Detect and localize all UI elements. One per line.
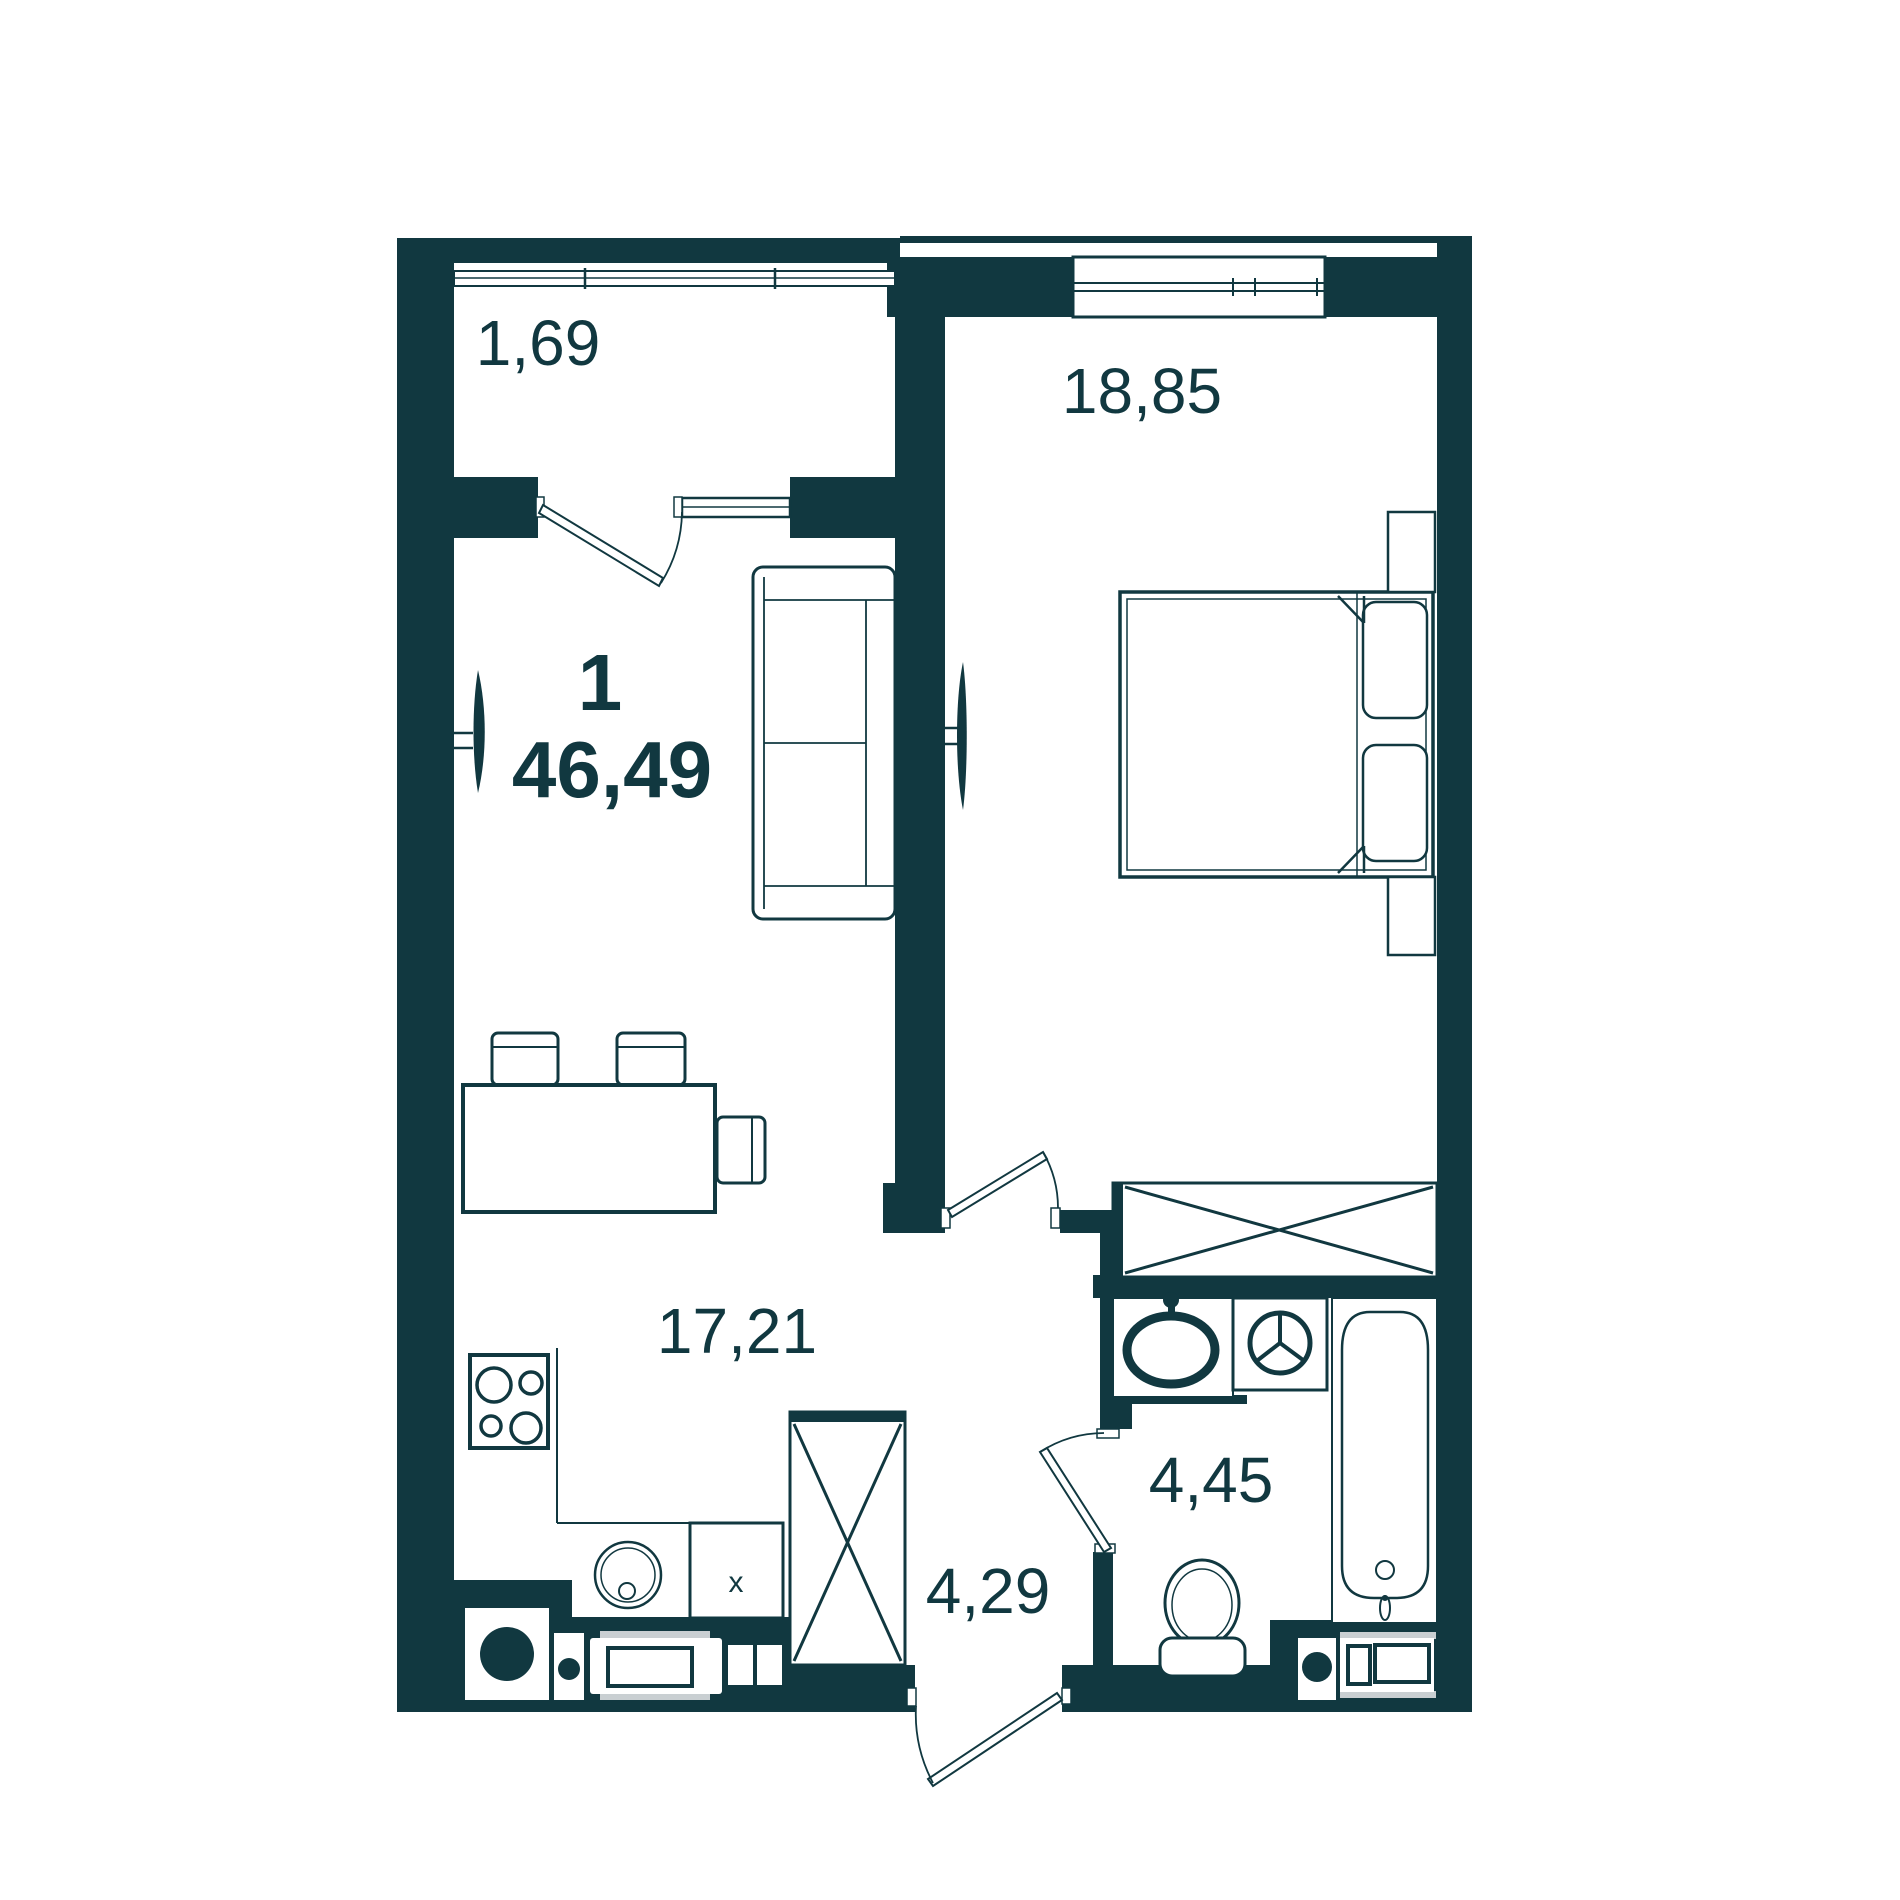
bath-band-cabinet-tab-bottom: [1340, 1691, 1436, 1698]
room-label-hallway: 4,29: [926, 1555, 1051, 1627]
wall-top-left-band: [397, 238, 900, 263]
wall-balcony-divider-left: [397, 477, 538, 538]
chair-top-1: [492, 1033, 558, 1085]
sink-faucet: [1163, 1292, 1179, 1308]
toilet-tank: [1160, 1638, 1245, 1676]
bath-band-cabinet-tab-top: [1340, 1632, 1436, 1639]
wall-right: [1437, 242, 1472, 1712]
bedroom-wardrobe: [1113, 1183, 1437, 1277]
bedroom-wardrobe-left-edge: [1113, 1183, 1123, 1277]
floor-plan-canvas: x: [0, 0, 1900, 1900]
bath-band-cabinet-inner-1: [1348, 1646, 1370, 1684]
kitchen-band-cabinet-tab-top: [600, 1631, 710, 1638]
kitchen-cabinet-mark: x: [729, 1566, 744, 1599]
toilet: [1160, 1560, 1245, 1682]
toilet-bowl: [1165, 1560, 1239, 1646]
kitchen-band-square-2: [757, 1645, 782, 1685]
sofa: [753, 567, 895, 919]
kitchen-washer-drum: [480, 1627, 534, 1681]
chair-right: [717, 1117, 765, 1183]
room-label-bathroom: 4,45: [1149, 1444, 1274, 1516]
kitchen-band-knob: [558, 1658, 580, 1680]
bed: [1120, 592, 1433, 877]
dining-table: [463, 1085, 715, 1212]
bath-band-cabinet-inner-2: [1375, 1645, 1429, 1682]
kitchen-wardrobe: [790, 1412, 905, 1665]
kitchen-band-cabinet-inner: [608, 1648, 692, 1686]
wall-left: [397, 238, 454, 1712]
entrance-door-jamb-right: [1062, 1688, 1071, 1704]
toilet-button: [1203, 1676, 1211, 1682]
kitchen-band-cabinet-tab-bottom: [600, 1693, 710, 1700]
balcony-door-jamb-right: [674, 497, 682, 517]
sink-bowl: [1127, 1316, 1215, 1384]
kitchen-band-square-1: [728, 1645, 753, 1685]
room-label-kitchen-living: 17,21: [657, 1295, 817, 1367]
bathtub-basin: [1342, 1312, 1428, 1598]
wall-bathroom-left-lower: [1093, 1552, 1113, 1665]
wall-top-thin-edge: [900, 236, 1472, 243]
wall-living-bedroom-divider: [895, 317, 945, 1233]
total-area-label: 46,49: [512, 725, 712, 814]
entrance-door-jamb-left: [907, 1688, 916, 1706]
pillow-2: [1363, 745, 1427, 861]
bathtub-faucet-head: [1382, 1595, 1388, 1601]
bedroom-window: [1073, 257, 1325, 317]
nightstand-bottom: [1388, 877, 1435, 955]
stove: [470, 1355, 548, 1448]
bedroom-door-jamb-right: [1051, 1208, 1060, 1228]
kitchen-wardrobe-top-edge: [790, 1412, 905, 1422]
wall-balcony-divider-right: [790, 477, 897, 538]
bathroom-sink: [1113, 1291, 1233, 1397]
wall-divider-foot-block: [883, 1183, 945, 1233]
rooms-count-label: 1: [578, 638, 623, 727]
chair-top-2: [617, 1033, 685, 1085]
wall-top-center-block: [887, 257, 1073, 317]
floor-plan-page: x: [0, 0, 1900, 1900]
bathtub: [1332, 1298, 1437, 1623]
toilet-button: [1191, 1676, 1199, 1682]
pillow-1: [1363, 602, 1427, 718]
room-label-bedroom: 18,85: [1062, 355, 1222, 427]
bathroom-washing-machine: [1233, 1298, 1327, 1390]
room-label-balcony: 1,69: [476, 307, 601, 379]
bath-band-knob: [1302, 1652, 1332, 1682]
nightstand-top: [1388, 512, 1435, 592]
